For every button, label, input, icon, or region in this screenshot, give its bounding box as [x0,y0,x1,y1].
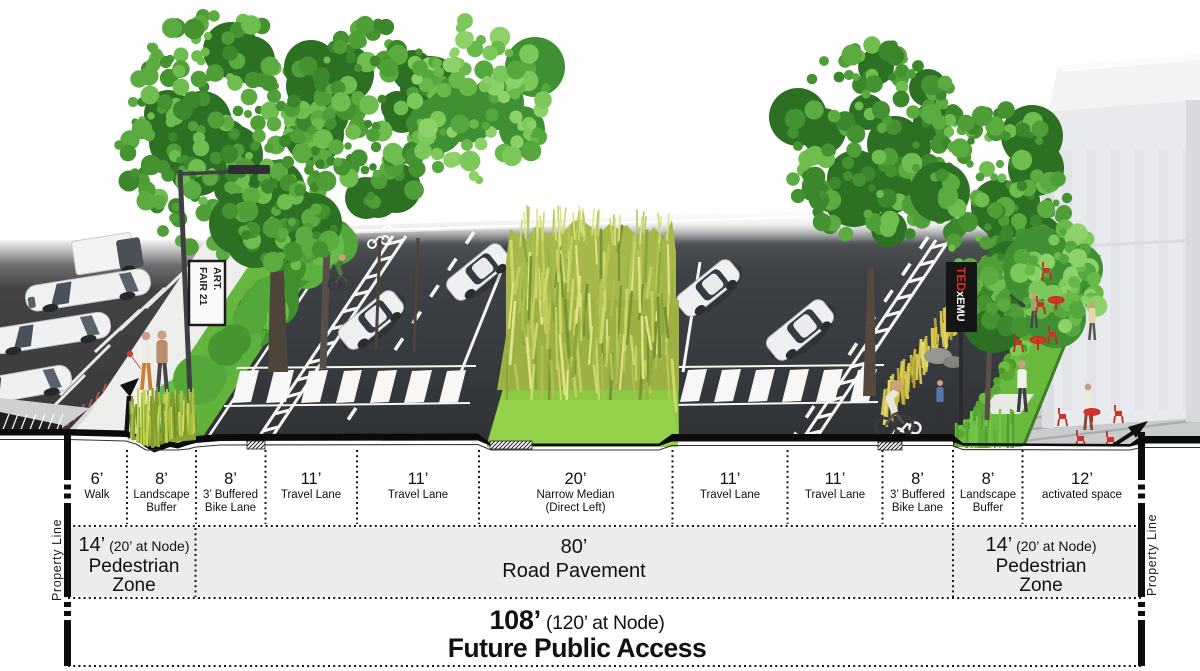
svg-text:Landscape: Landscape [960,489,1016,501]
svg-text:Bike Lane: Bike Lane [892,502,943,514]
svg-text:Pedestrian: Pedestrian [89,556,180,577]
svg-text:12’: 12’ [1071,470,1093,488]
svg-text:8’: 8’ [155,470,168,488]
svg-text:14’ (20’ at Node): 14’ (20’ at Node) [78,534,189,556]
svg-text:8’: 8’ [982,470,995,488]
svg-text:Zone: Zone [112,575,155,596]
svg-text:8’: 8’ [911,470,924,488]
svg-text:TEDxEMU: TEDxEMU [954,267,968,322]
svg-text:Property Line: Property Line [50,519,64,601]
svg-text:8’: 8’ [224,470,237,488]
svg-text:Narrow Median: Narrow Median [537,489,615,501]
svg-text:Buffer: Buffer [973,502,1004,514]
svg-text:11’: 11’ [408,470,429,488]
svg-text:11’: 11’ [720,470,741,488]
svg-text:Travel Lane: Travel Lane [281,489,341,501]
svg-text:Future Public Access: Future Public Access [448,633,707,663]
svg-text:Pedestrian: Pedestrian [996,556,1087,577]
svg-text:(Direct Left): (Direct Left) [545,502,605,514]
svg-text:Property Line: Property Line [1145,514,1159,596]
svg-text:3’ Buffered: 3’ Buffered [203,489,258,501]
svg-text:108’ (120’ at Node): 108’ (120’ at Node) [489,605,664,635]
svg-text:ART.: ART. [211,267,223,290]
svg-text:80’: 80’ [561,536,588,558]
svg-text:Travel Lane: Travel Lane [388,489,448,501]
svg-text:Zone: Zone [1019,575,1062,596]
svg-text:Walk: Walk [84,489,109,501]
svg-text:FAIR 21: FAIR 21 [197,267,209,306]
svg-text:Landscape: Landscape [133,489,189,501]
svg-text:Travel Lane: Travel Lane [805,489,865,501]
svg-text:14’ (20’ at Node): 14’ (20’ at Node) [985,534,1096,556]
svg-text:11’: 11’ [301,470,322,488]
svg-text:20’: 20’ [564,470,586,488]
svg-text:11’: 11’ [825,470,846,488]
svg-text:3’ Buffered: 3’ Buffered [890,489,945,501]
svg-text:activated space: activated space [1042,489,1122,501]
svg-text:6’: 6’ [91,470,104,488]
svg-text:Travel Lane: Travel Lane [700,489,760,501]
svg-text:Bike Lane: Bike Lane [205,502,256,514]
svg-text:Road Pavement: Road Pavement [502,560,646,582]
svg-text:Buffer: Buffer [146,502,177,514]
